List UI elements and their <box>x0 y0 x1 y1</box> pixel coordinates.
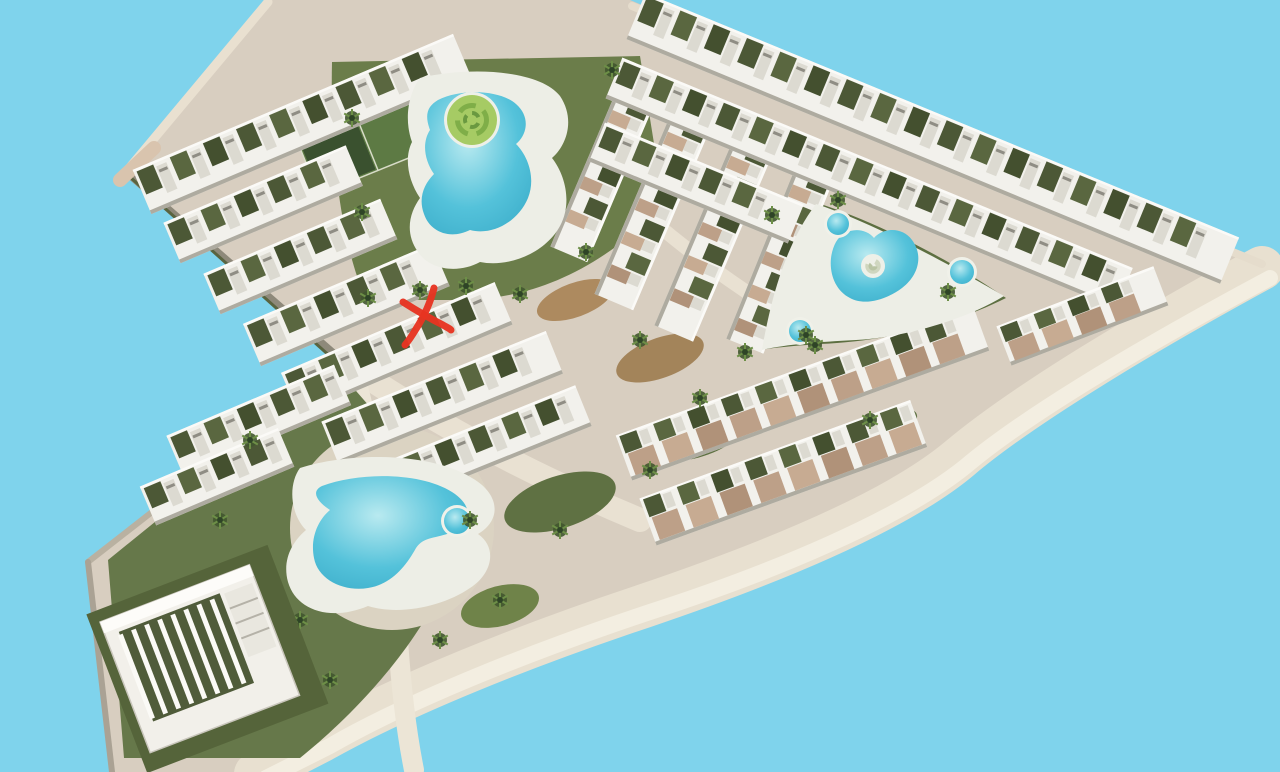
masterplan-render <box>0 0 1280 772</box>
south-pool <box>286 457 494 613</box>
site-plan <box>0 0 1280 772</box>
lagoon-pool <box>408 72 568 269</box>
